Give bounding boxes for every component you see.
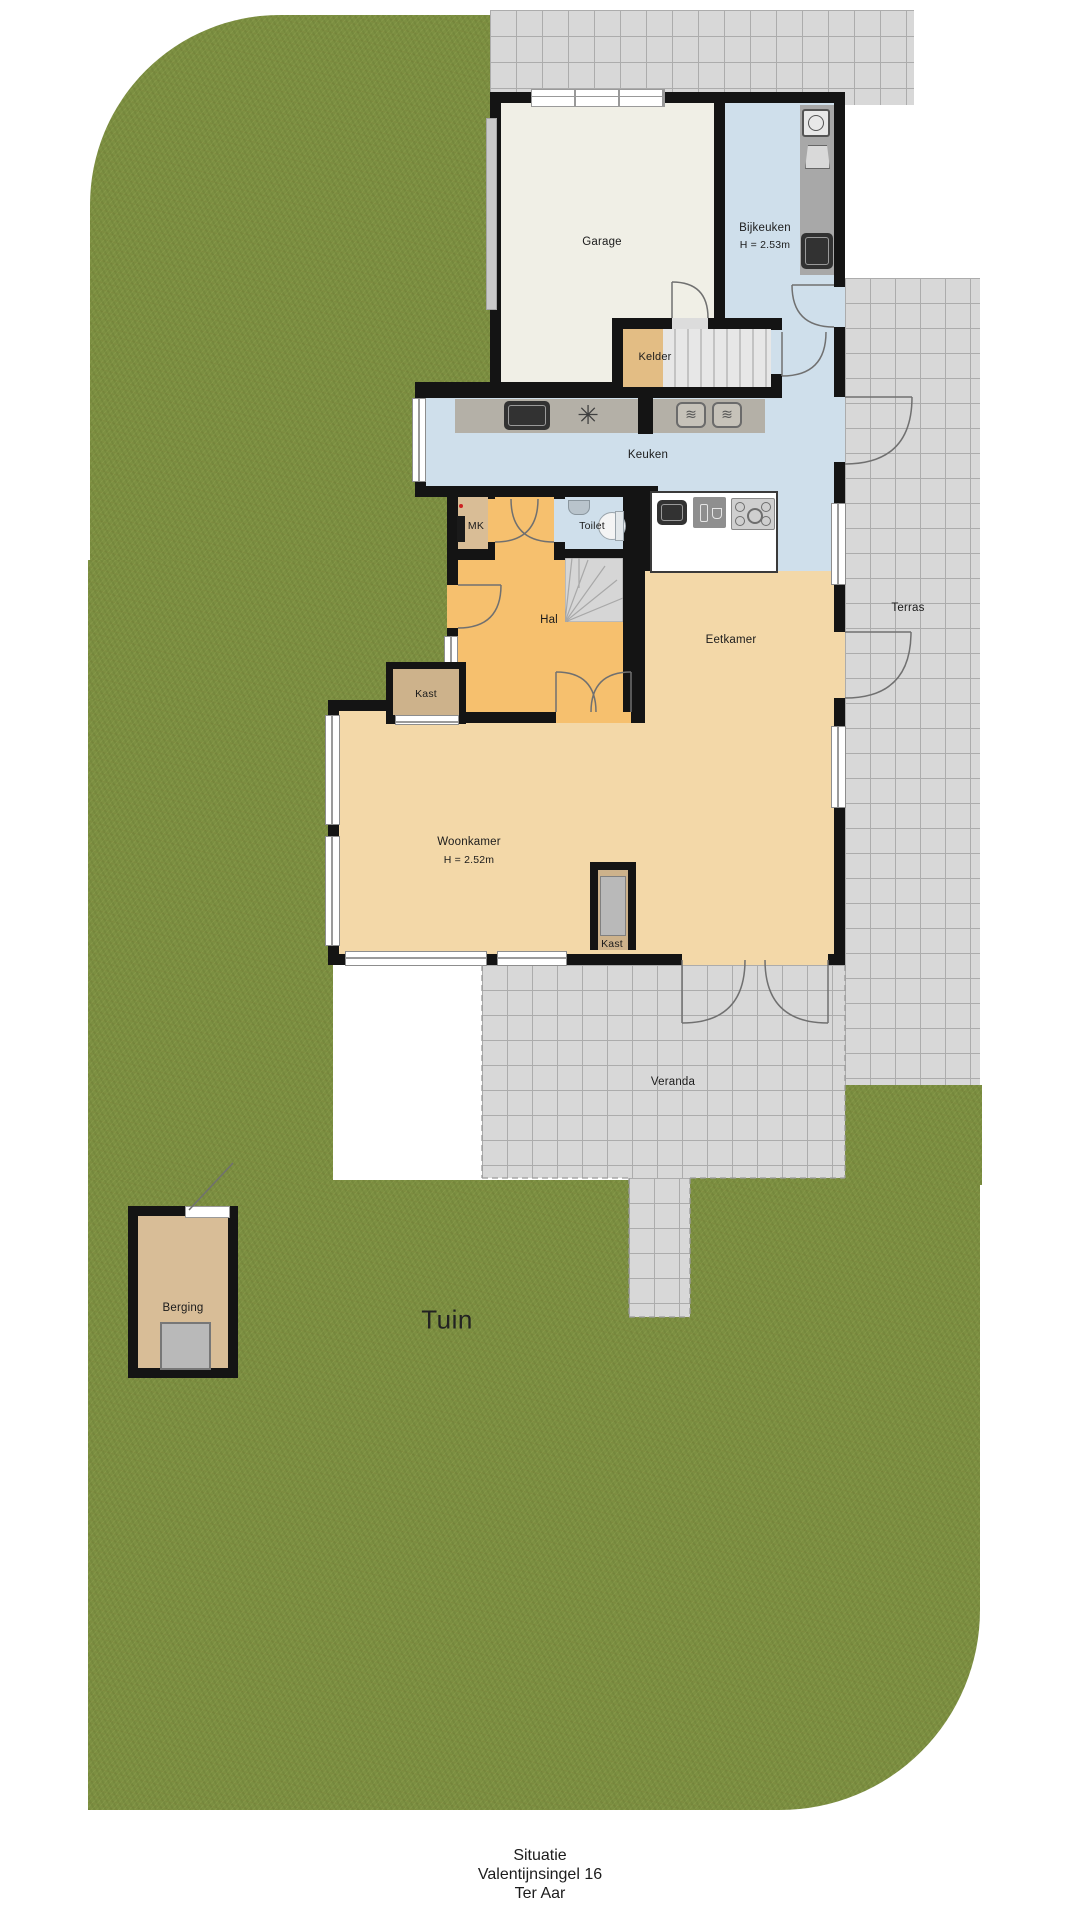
woonkamer-bottom-window-1: [345, 951, 487, 966]
footer-address: Valentijnsingel 16: [0, 1865, 1080, 1884]
toilet-door-opening: [554, 499, 565, 542]
woonkamer-floor-left: [339, 711, 447, 954]
label-kast2: Kast: [601, 938, 623, 950]
washer-icon: [802, 109, 830, 137]
laundry-basket-icon: [805, 145, 830, 169]
label-tuin: Tuin: [421, 1305, 473, 1336]
berging-storage-box: [160, 1322, 211, 1370]
label-garage: Garage: [582, 236, 622, 248]
garden-left-column: [88, 700, 333, 1220]
dishwasher-glass-glyph: [712, 508, 722, 519]
footer-city: Ter Aar: [0, 1884, 1080, 1903]
woonkamer-left-window-1: [325, 715, 340, 825]
label-bijkeuken-height: H = 2.53m: [740, 239, 791, 251]
meter-led-icon: [459, 504, 463, 508]
island-hob-icon: [731, 498, 775, 530]
garage-door: [531, 89, 665, 107]
meter-panel-icon: [457, 516, 465, 542]
label-kelder: Kelder: [639, 351, 672, 363]
corridor-floor: [495, 497, 554, 560]
label-mk: MK: [468, 520, 484, 532]
woonkamer-bottom-window-2: [497, 951, 567, 966]
label-keuken: Keuken: [628, 449, 668, 461]
label-hal: Hal: [540, 614, 558, 626]
island-sink-icon: [657, 500, 687, 525]
label-veranda: Veranda: [651, 1076, 695, 1088]
label-woonkamer: Woonkamer: [437, 836, 501, 848]
island-dishwasher-icon: [693, 497, 726, 528]
eetkamer-right-window-2: [831, 726, 846, 808]
hob-flower-icon: ✳: [572, 401, 604, 431]
toilet-sink-icon: [568, 500, 590, 515]
dishwasher-bottle-glyph: [700, 504, 708, 522]
kelder-stairs: [663, 329, 771, 387]
oven-icon-2: ≋: [712, 402, 742, 428]
terras-tiles: [845, 278, 980, 1085]
kitchen-sink-icon: [504, 401, 550, 430]
label-eetkamer: Eetkamer: [706, 634, 757, 646]
oven-icon-1: ≋: [676, 402, 706, 428]
woonkamer-left-window-2: [325, 836, 340, 946]
label-terras: Terras: [891, 602, 924, 614]
kast1-sliding-door: [395, 715, 459, 725]
mk-door-opening: [488, 499, 495, 542]
keuken-left-window: [412, 398, 426, 482]
label-kast1: Kast: [415, 688, 437, 700]
kast2-cabinet: [600, 876, 626, 936]
label-bijkeuken: Bijkeuken: [739, 222, 791, 234]
garage-side-window: [486, 118, 497, 310]
floorplan-canvas: ✳ ≋ ≋: [0, 0, 1080, 1920]
label-toilet: Toilet: [579, 520, 605, 532]
kelder-side-opening: [771, 330, 782, 374]
keuken-terras-door-opening: [834, 397, 845, 462]
kelder-door-opening: [672, 318, 708, 329]
hal-stairs: [565, 558, 623, 622]
veranda-doors-opening: [682, 951, 828, 965]
bijkeuken-sink-icon: [801, 233, 833, 269]
terras-lower-strip: [629, 1178, 690, 1317]
toilet-tank-icon: [615, 511, 624, 541]
berging-door-opening: [185, 1206, 230, 1218]
eetkamer-floor: [645, 571, 834, 954]
eetkamer-terras-door-opening: [834, 632, 845, 698]
hal-french-door-opening: [556, 712, 631, 723]
front-door-opening: [447, 585, 458, 628]
footer-title: Situatie: [0, 1846, 1080, 1865]
bijkeuken-sidedoor-opening: [834, 287, 845, 327]
label-woonkamer-height: H = 2.52m: [444, 854, 495, 866]
label-berging: Berging: [162, 1302, 203, 1314]
counter-divider: [638, 398, 653, 434]
veranda-tiles: [482, 965, 845, 1178]
eetkamer-right-window-1: [831, 503, 846, 585]
